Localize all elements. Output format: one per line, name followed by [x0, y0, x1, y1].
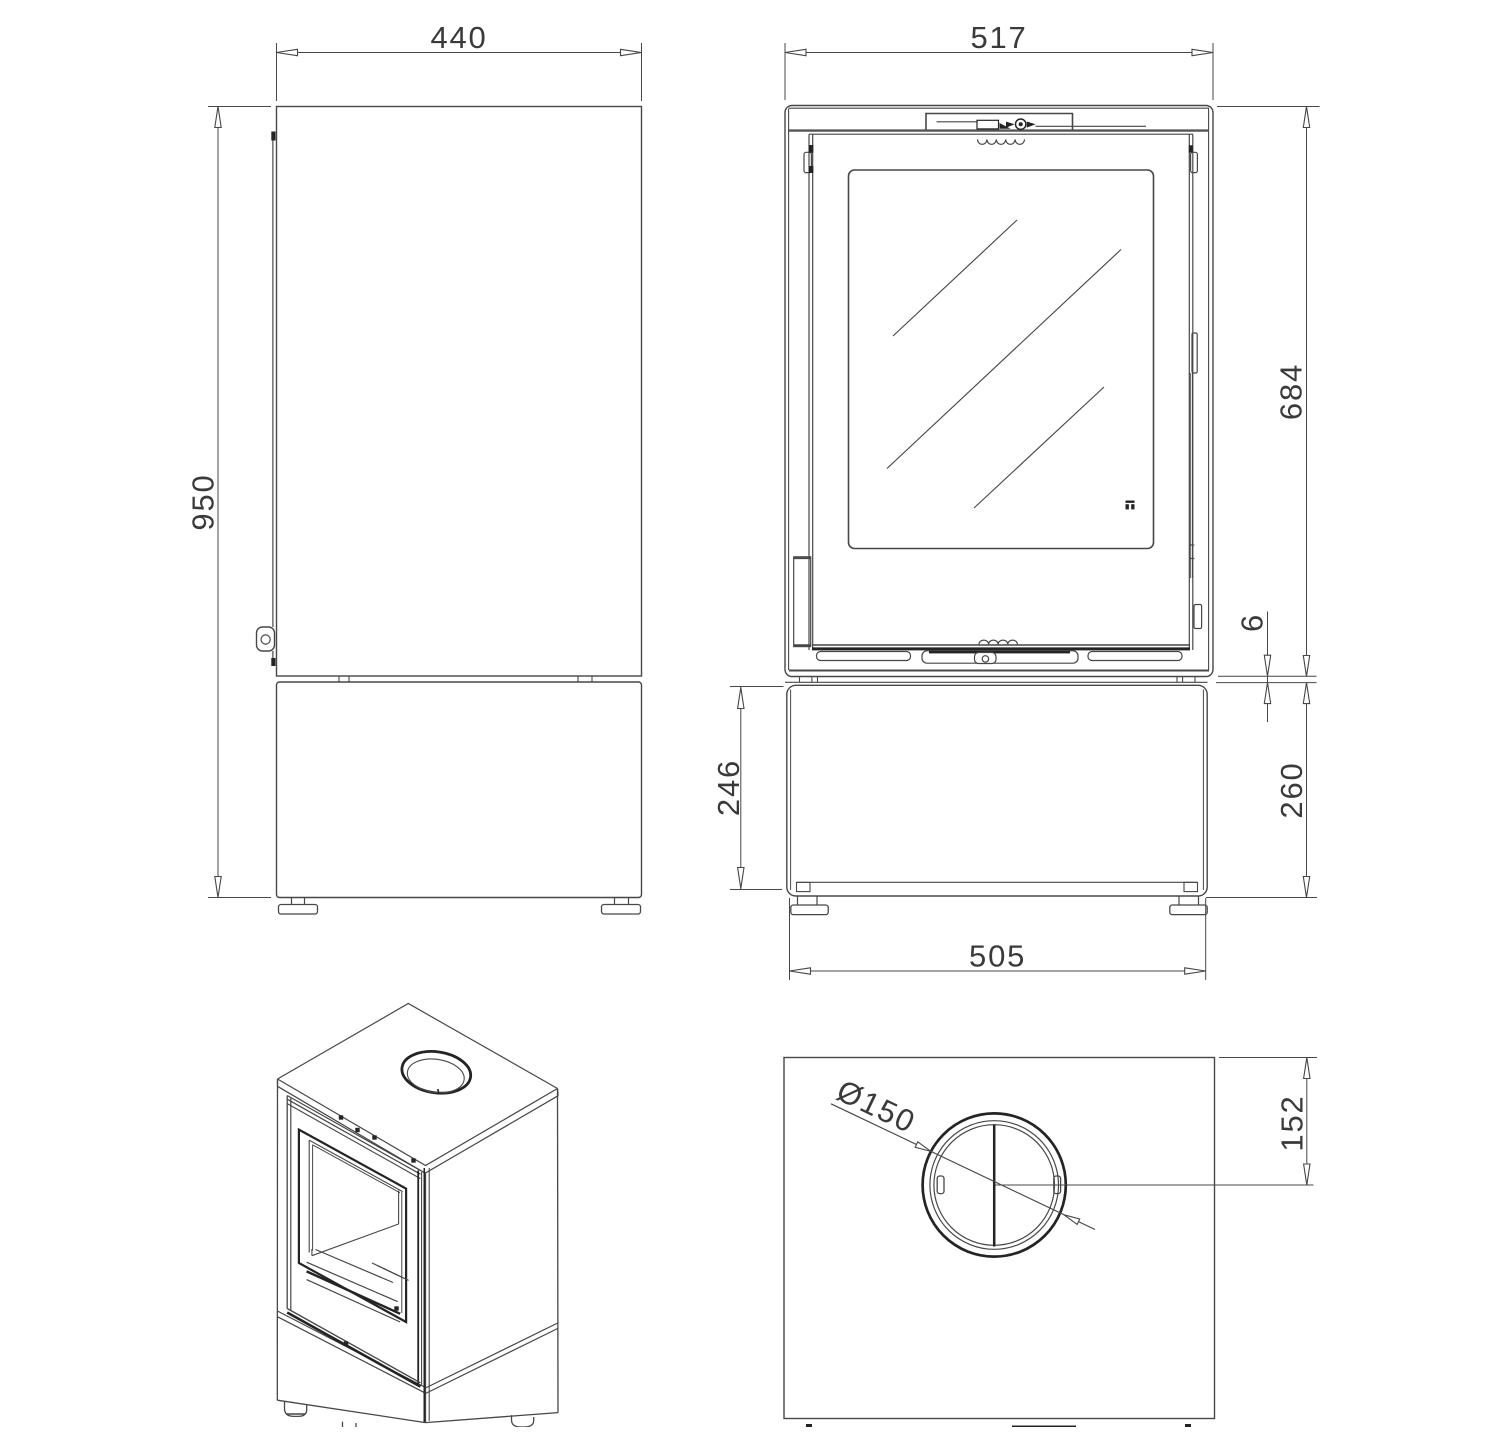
svg-text:260: 260 — [1274, 761, 1309, 818]
svg-text:684: 684 — [1274, 363, 1309, 420]
svg-text:152: 152 — [1275, 1094, 1310, 1151]
svg-text:950: 950 — [186, 473, 221, 530]
svg-text:246: 246 — [711, 759, 746, 816]
svg-text:517: 517 — [970, 20, 1027, 55]
svg-text:6: 6 — [1235, 613, 1270, 632]
svg-text:505: 505 — [969, 939, 1026, 974]
svg-text:440: 440 — [430, 20, 487, 55]
